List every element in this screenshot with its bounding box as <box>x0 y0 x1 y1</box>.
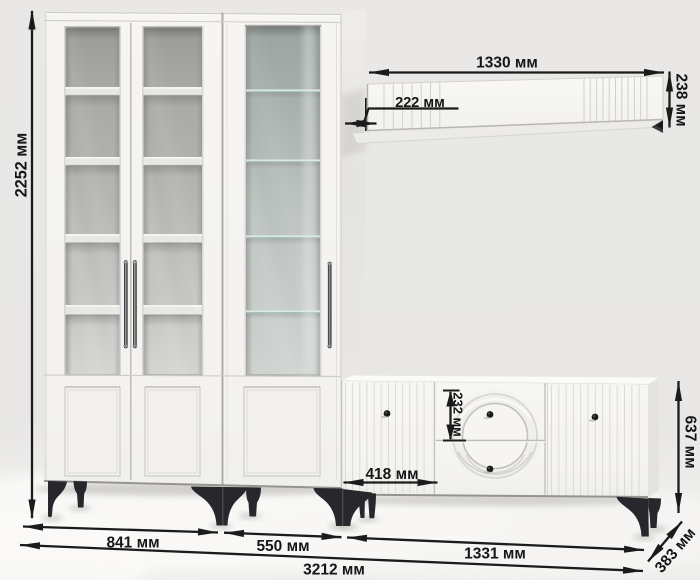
svg-text:637 мм: 637 мм <box>682 415 699 468</box>
svg-text:2252 мм: 2252 мм <box>13 133 31 197</box>
svg-text:232 мм: 232 мм <box>451 392 466 437</box>
svg-text:550 мм: 550 мм <box>256 538 309 555</box>
svg-text:238 мм: 238 мм <box>673 73 690 126</box>
svg-text:1330 мм: 1330 мм <box>476 55 538 72</box>
svg-text:1331 мм: 1331 мм <box>464 546 526 563</box>
svg-text:418 мм: 418 мм <box>365 466 418 483</box>
svg-text:3212 мм: 3212 мм <box>303 562 365 579</box>
